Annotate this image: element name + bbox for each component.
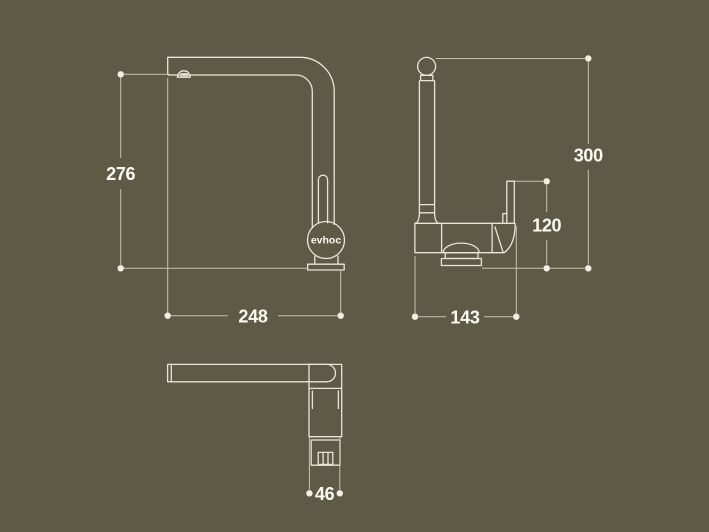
- dimension-dot: [544, 265, 550, 271]
- technical-drawing-canvas: evhoc 276 248: [0, 0, 709, 532]
- top-view: 46: [168, 364, 343, 503]
- front-view: evhoc 276 248: [106, 57, 344, 326]
- side-column: [419, 81, 434, 213]
- side-spout-top-circle: [418, 57, 436, 75]
- dimension-dot: [337, 490, 343, 496]
- dimension-dot: [306, 490, 312, 496]
- dimension-dot: [412, 314, 418, 320]
- dimension-dot: [585, 265, 591, 271]
- side-column-flare: [415, 213, 439, 224]
- dimension-dot: [118, 71, 124, 77]
- side-base-dome: [443, 243, 479, 253]
- side-handle-lever: [503, 181, 515, 223]
- side-body-divider: [442, 223, 516, 252]
- front-base-plate: [308, 264, 345, 270]
- side-handle-pivot: [495, 223, 515, 252]
- front-spout-inner: [168, 75, 313, 229]
- dimension-dot: [165, 313, 171, 319]
- dimension-line: [415, 226, 516, 317]
- dimension-value-side-width: 143: [450, 307, 479, 327]
- side-faucet-outline: [415, 57, 515, 265]
- side-spout-collar: [419, 75, 434, 80]
- dimension-value-front-height: 276: [106, 164, 135, 184]
- dimension-side-width: 143: [412, 226, 520, 327]
- dimension-value-top-width: 46: [315, 484, 335, 504]
- dimension-front-width: 248: [165, 78, 344, 326]
- front-faucet-outline: evhoc: [168, 57, 345, 270]
- top-body-lines: [309, 388, 342, 409]
- dimension-line: [309, 438, 339, 490]
- side-body: [415, 223, 492, 252]
- dimension-dot: [544, 178, 550, 184]
- dimension-dot: [513, 314, 519, 320]
- dimension-value-handle-height: 120: [532, 216, 561, 236]
- dimension-handle-height: 120: [515, 178, 562, 271]
- top-body: [309, 364, 342, 436]
- top-spout-arm: [168, 364, 336, 381]
- dimension-value-side-height: 300: [574, 146, 603, 166]
- side-base-plate: [441, 259, 481, 266]
- dimension-side-height: 300: [436, 55, 604, 271]
- dimension-front-height: 276: [106, 71, 307, 271]
- dimension-value-front-width: 248: [238, 306, 267, 326]
- side-view: 300 120 143: [412, 55, 603, 327]
- faucet-dimension-drawing: evhoc 276 248: [0, 0, 709, 532]
- dimension-line: [121, 74, 308, 268]
- dimension-dot: [585, 55, 591, 61]
- dimension-dot: [338, 313, 344, 319]
- side-base-collar: [445, 253, 478, 259]
- dimension-line: [168, 78, 341, 316]
- top-faucet-outline: [168, 364, 342, 465]
- top-handle-ridge: [318, 452, 333, 464]
- dimension-line: [436, 59, 589, 269]
- front-cartridge-arch: [318, 175, 327, 223]
- brand-logo-text: evhoc: [311, 235, 342, 247]
- dimension-dot: [118, 265, 124, 271]
